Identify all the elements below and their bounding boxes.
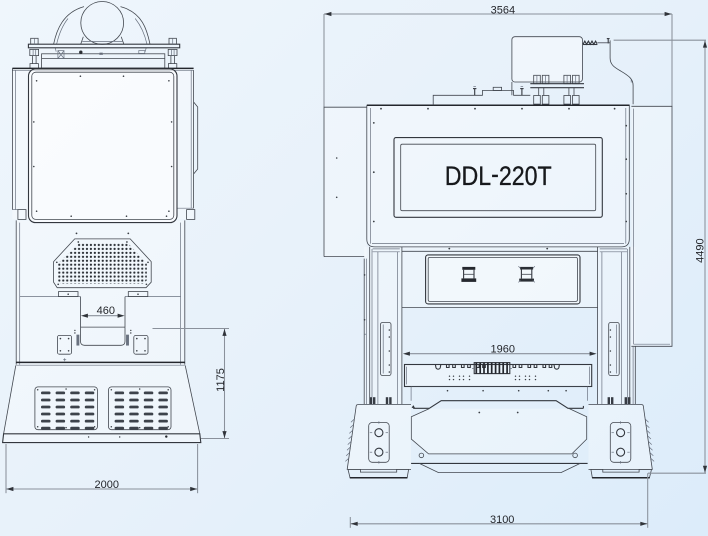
- svg-text:460: 460: [97, 305, 115, 317]
- svg-text:1175: 1175: [215, 368, 227, 392]
- svg-text:1960: 1960: [491, 343, 515, 355]
- svg-text:3100: 3100: [490, 514, 514, 526]
- svg-text:3564: 3564: [491, 4, 515, 16]
- svg-text:4490: 4490: [694, 238, 706, 262]
- svg-text:DDL-220T: DDL-220T: [445, 159, 552, 191]
- svg-text:2000: 2000: [95, 479, 119, 491]
